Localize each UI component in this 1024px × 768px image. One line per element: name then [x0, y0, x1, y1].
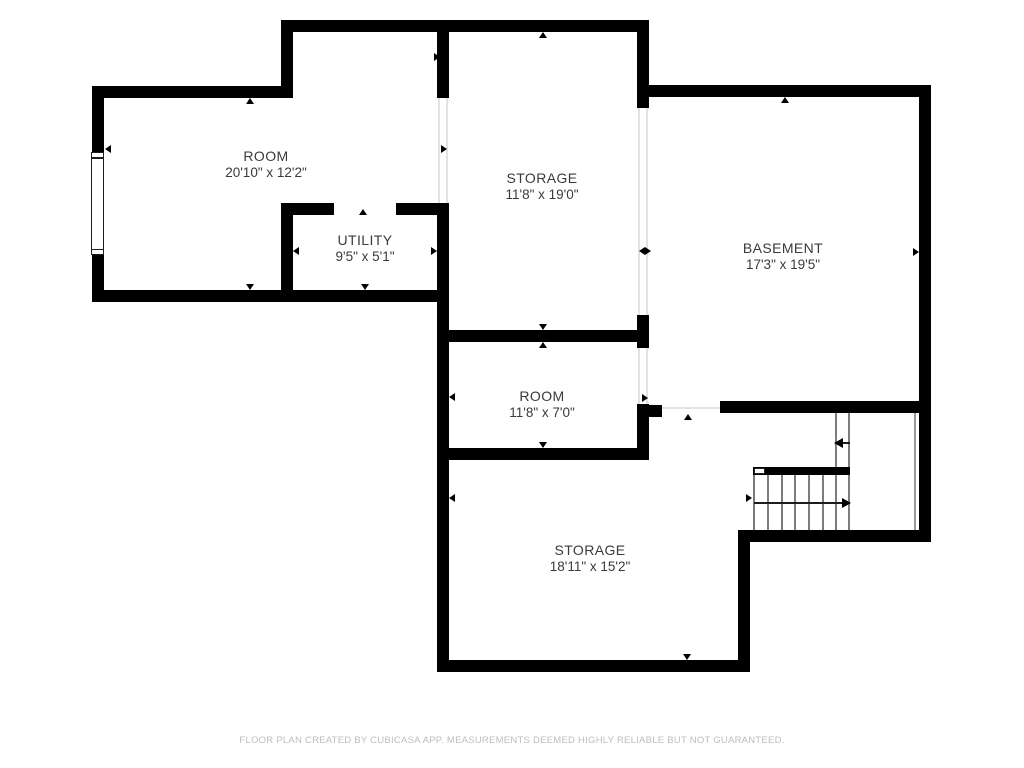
measurement-tick	[361, 284, 369, 290]
wall-room2-right-lower	[637, 404, 649, 460]
floorplan-canvas: ROOM 20'10" x 12'2" STORAGE 11'8" x 19'0…	[0, 0, 1024, 768]
measurement-tick	[434, 53, 440, 61]
wall-notch-left	[281, 20, 293, 98]
window	[91, 152, 104, 255]
stair-stringer-notch	[754, 468, 765, 474]
measurement-tick	[683, 654, 691, 660]
stair-direction-arrow-head	[842, 498, 851, 508]
wall-basement-door-stub	[649, 405, 662, 417]
wall-utility-left	[281, 203, 293, 302]
opening-storage1-basement-right-edge	[646, 108, 648, 315]
opening-room1-storage1-left-edge	[438, 98, 440, 203]
wall-storage1-right-top	[637, 20, 649, 108]
room-name: STORAGE	[550, 542, 631, 558]
measurement-tick	[359, 209, 367, 215]
room-label-storage1: STORAGE 11'8" x 19'0"	[505, 170, 578, 203]
room-dimensions: 11'8" x 19'0"	[505, 186, 578, 203]
window-pane-line	[92, 249, 103, 251]
measurement-tick	[642, 394, 648, 402]
measurement-tick	[246, 284, 254, 290]
measurement-tick	[449, 494, 455, 502]
stair-tread	[753, 467, 755, 530]
measurement-tick	[431, 247, 437, 255]
wall-basement-top	[637, 85, 931, 97]
wall-storage2-right	[738, 530, 750, 672]
wall-divider-long	[437, 203, 449, 672]
wall-room2-right-upper	[637, 315, 649, 348]
room-name: ROOM	[509, 388, 575, 404]
room-label-room2: ROOM 11'8" x 7'0"	[509, 388, 575, 421]
wall-storage1-bottom	[437, 330, 649, 342]
room-dimensions: 18'11" x 15'2"	[550, 558, 631, 575]
wall-basement-bottom	[720, 401, 931, 413]
room-name: STORAGE	[505, 170, 578, 186]
measurement-tick	[684, 414, 692, 420]
room-label-basement: BASEMENT 17'3" x 19'5"	[743, 240, 823, 273]
room-name: UTILITY	[335, 232, 394, 248]
wall-right-exterior	[919, 85, 931, 542]
measurement-tick	[441, 145, 447, 153]
stair-upper-arrow-head	[834, 438, 843, 448]
stair-handrail-line	[914, 413, 916, 530]
measurement-tick	[539, 324, 547, 330]
wall-notch-top	[281, 20, 649, 32]
room-dimensions: 11'8" x 7'0"	[509, 404, 575, 421]
measurement-tick	[645, 247, 651, 255]
measurement-tick	[781, 97, 789, 103]
room-dimensions: 9'5" x 5'1"	[335, 248, 394, 265]
measurement-tick	[539, 342, 547, 348]
room-label-room1: ROOM 20'10" x 12'2"	[225, 148, 307, 181]
room-name: BASEMENT	[743, 240, 823, 256]
measurement-tick	[779, 407, 787, 413]
wall-room2-bottom	[437, 448, 649, 460]
wall-stairhall-bottom	[738, 530, 931, 542]
room-label-storage2: STORAGE 18'11" x 15'2"	[550, 542, 631, 575]
measurement-tick	[105, 145, 111, 153]
stair-stringer-bar	[753, 467, 850, 475]
opening-storage1-basement-left-edge	[638, 108, 640, 315]
room-dimensions: 17'3" x 19'5"	[743, 256, 823, 273]
room-dimensions: 20'10" x 12'2"	[225, 164, 307, 181]
room-name: ROOM	[225, 148, 307, 164]
measurement-tick	[246, 98, 254, 104]
measurement-tick	[913, 248, 919, 256]
measurement-tick	[539, 32, 547, 38]
opening-basement-door-threshold	[662, 407, 720, 409]
room-label-utility: UTILITY 9'5" x 5'1"	[335, 232, 394, 265]
measurement-tick	[449, 393, 455, 401]
measurement-tick	[539, 442, 547, 448]
window-pane-line	[92, 157, 103, 159]
wall-room1-top	[92, 86, 293, 98]
measurement-tick	[293, 247, 299, 255]
wall-storage2-bottom	[437, 660, 750, 672]
footer-disclaimer: FLOOR PLAN CREATED BY CUBICASA APP. MEAS…	[239, 735, 784, 746]
opening-room2-hall-left-edge	[638, 348, 640, 404]
wall-room1-bottom	[92, 290, 449, 302]
stair-direction-arrow-shaft	[754, 502, 844, 504]
measurement-tick	[746, 494, 752, 502]
